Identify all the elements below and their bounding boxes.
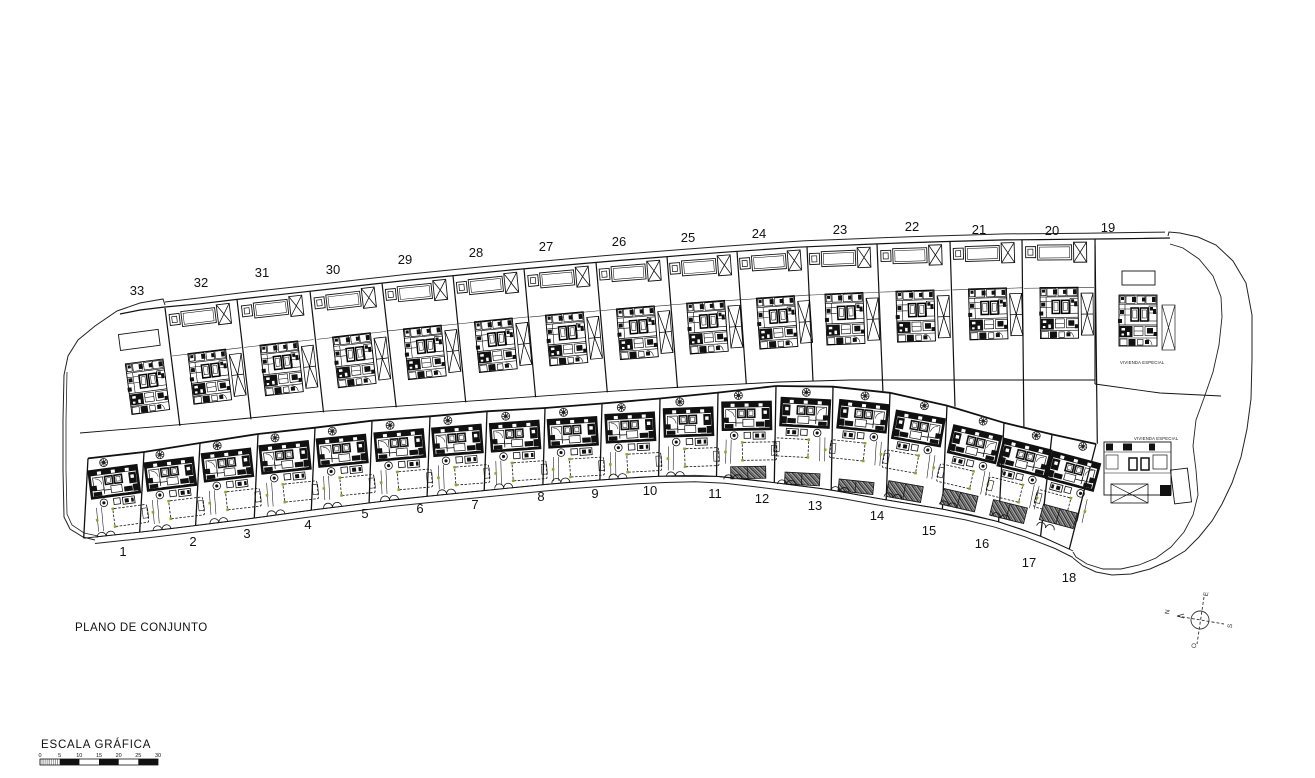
svg-text:32: 32 bbox=[194, 275, 208, 290]
svg-text:6: 6 bbox=[416, 501, 423, 516]
svg-text:16: 16 bbox=[975, 536, 989, 551]
svg-text:26: 26 bbox=[612, 234, 626, 249]
svg-text:17: 17 bbox=[1022, 555, 1036, 570]
svg-text:7: 7 bbox=[471, 497, 478, 512]
svg-text:1: 1 bbox=[119, 544, 126, 559]
svg-text:24: 24 bbox=[752, 226, 766, 241]
svg-text:8: 8 bbox=[537, 489, 544, 504]
svg-text:28: 28 bbox=[469, 245, 483, 260]
svg-text:20: 20 bbox=[116, 753, 122, 759]
svg-text:33: 33 bbox=[130, 283, 144, 298]
svg-text:25: 25 bbox=[135, 753, 141, 759]
svg-text:27: 27 bbox=[539, 239, 553, 254]
svg-text:25: 25 bbox=[681, 230, 695, 245]
svg-text:13: 13 bbox=[808, 498, 822, 513]
svg-text:23: 23 bbox=[833, 222, 847, 237]
svg-text:11: 11 bbox=[708, 486, 722, 501]
svg-text:15: 15 bbox=[96, 753, 102, 759]
svg-text:0: 0 bbox=[38, 753, 41, 759]
svg-text:30: 30 bbox=[155, 753, 161, 759]
svg-text:4: 4 bbox=[304, 517, 311, 532]
svg-text:19: 19 bbox=[1101, 220, 1115, 235]
svg-text:31: 31 bbox=[255, 265, 269, 280]
svg-text:VIVIENDA ESPECIAL: VIVIENDA ESPECIAL bbox=[1120, 360, 1165, 365]
svg-text:15: 15 bbox=[922, 523, 936, 538]
svg-text:29: 29 bbox=[398, 252, 412, 267]
svg-text:3: 3 bbox=[243, 526, 250, 541]
svg-text:ESCALA GRÁFICA: ESCALA GRÁFICA bbox=[41, 738, 151, 751]
svg-text:18: 18 bbox=[1062, 570, 1076, 585]
svg-text:10: 10 bbox=[76, 753, 82, 759]
svg-text:12: 12 bbox=[755, 491, 769, 506]
svg-text:21: 21 bbox=[972, 222, 986, 237]
svg-text:PLANO DE CONJUNTO: PLANO DE CONJUNTO bbox=[75, 622, 208, 634]
svg-text:5: 5 bbox=[361, 506, 368, 521]
svg-text:30: 30 bbox=[326, 262, 340, 277]
svg-text:5: 5 bbox=[58, 753, 61, 759]
svg-text:9: 9 bbox=[591, 486, 598, 501]
svg-text:22: 22 bbox=[905, 219, 919, 234]
svg-text:2: 2 bbox=[189, 534, 196, 549]
svg-text:14: 14 bbox=[870, 508, 884, 523]
svg-text:20: 20 bbox=[1045, 223, 1059, 238]
svg-text:10: 10 bbox=[643, 483, 657, 498]
svg-text:VIVIENDA ESPECIAL: VIVIENDA ESPECIAL bbox=[1134, 436, 1179, 441]
